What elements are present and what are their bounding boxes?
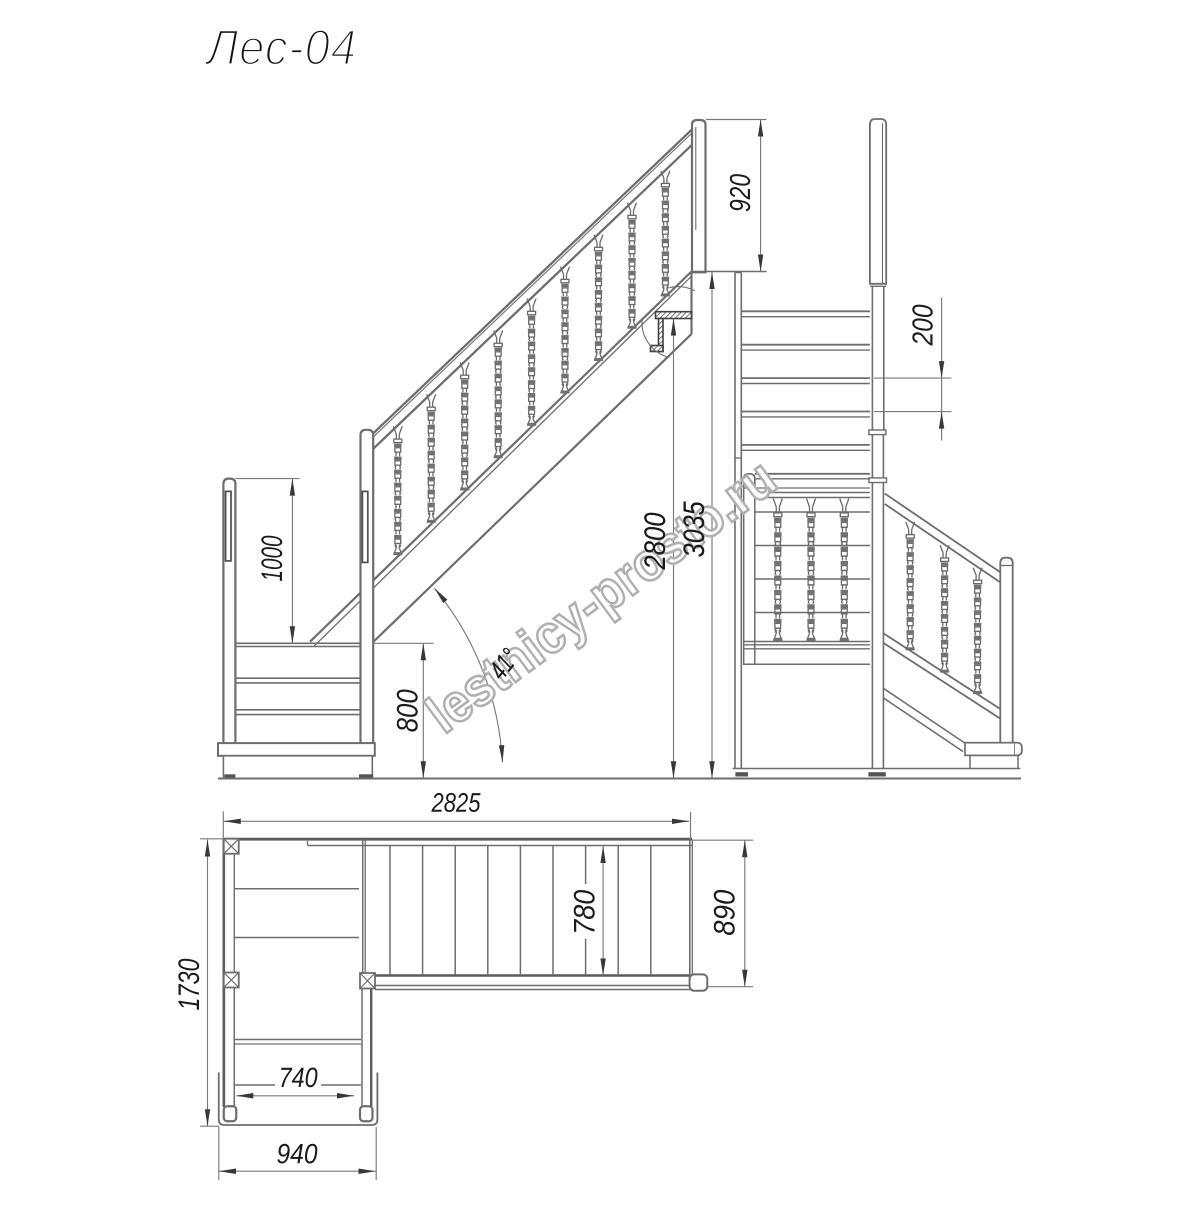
svg-text:2800: 2800 [639,512,672,570]
svg-text:780: 780 [568,889,601,934]
svg-text:2825: 2825 [431,788,482,818]
svg-text:890: 890 [709,889,742,935]
svg-text:920: 920 [725,174,757,212]
svg-text:940: 940 [276,1138,317,1169]
svg-text:1730: 1730 [173,958,206,1010]
svg-text:740: 740 [279,1062,318,1093]
svg-text:1000: 1000 [256,535,289,581]
svg-text:200: 200 [907,305,939,347]
svg-text:3035: 3035 [678,501,711,557]
svg-text:Лес-04: Лес-04 [204,19,357,75]
